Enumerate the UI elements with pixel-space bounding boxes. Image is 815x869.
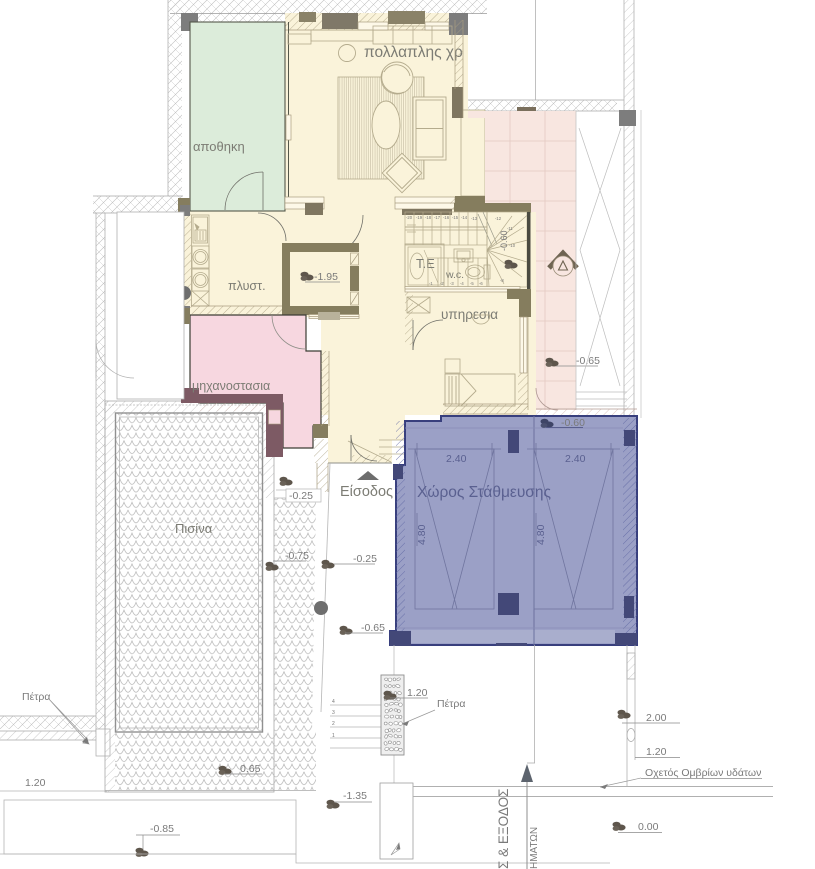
svg-text:1.20: 1.20	[646, 746, 667, 758]
svg-text:2: 2	[332, 721, 335, 727]
svg-text:2.00: 2.00	[646, 712, 667, 724]
svg-text:-16: -16	[443, 215, 450, 220]
svg-text:1: 1	[332, 733, 335, 739]
svg-text:-0.25: -0.25	[353, 553, 377, 565]
svg-text:-19: -19	[416, 215, 423, 220]
svg-text:-0.65: -0.65	[361, 622, 385, 634]
svg-text:-14: -14	[461, 215, 468, 220]
svg-text:0.65: 0.65	[240, 763, 261, 775]
svg-text:υπηρεσια: υπηρεσια	[441, 307, 498, 322]
svg-text:-1.95: -1.95	[314, 271, 338, 283]
svg-text:-0.25: -0.25	[289, 490, 313, 502]
svg-text:-17: -17	[434, 215, 441, 220]
svg-text:3: 3	[332, 710, 335, 716]
svg-text:-10: -10	[509, 243, 516, 248]
svg-text:1.20: 1.20	[25, 777, 46, 789]
svg-text:4.80: 4.80	[416, 524, 428, 545]
svg-text:1.20: 1.20	[407, 687, 428, 699]
svg-text:-12: -12	[495, 216, 502, 221]
svg-text:Χώρος Στάθμευσης: Χώρος Στάθμευσης	[417, 484, 551, 501]
svg-text:ΗΜΑΤΩΝ: ΗΜΑΤΩΝ	[529, 827, 540, 869]
svg-text:-15: -15	[452, 215, 459, 220]
svg-text:-20: -20	[406, 215, 413, 220]
svg-text:Πέτρα: Πέτρα	[22, 691, 50, 703]
svg-text:μηχανοστασια: μηχανοστασια	[192, 379, 270, 393]
svg-text:πολλαπλης χρ: πολλαπλης χρ	[364, 44, 463, 61]
svg-text:Σ & ΕΞΟΔΟΣ: Σ & ΕΞΟΔΟΣ	[496, 789, 511, 869]
svg-text:-18: -18	[425, 215, 432, 220]
svg-text:-11: -11	[507, 226, 513, 231]
svg-text:πλυστ.: πλυστ.	[228, 279, 266, 293]
svg-text:4.80: 4.80	[535, 524, 547, 545]
svg-text:-1.35: -1.35	[343, 790, 367, 802]
svg-text:Οχετός Ομβρίων υδάτων: Οχετός Ομβρίων υδάτων	[645, 767, 761, 779]
svg-text:-0.65: -0.65	[576, 355, 600, 367]
svg-text:-0.85: -0.85	[150, 823, 174, 835]
svg-text:2.40: 2.40	[565, 453, 586, 465]
svg-text:0.00: 0.00	[638, 821, 659, 833]
svg-text:Είσοδος: Είσοδος	[340, 484, 393, 500]
svg-text:-0.60: -0.60	[499, 230, 509, 251]
svg-text:αποθηκη: αποθηκη	[193, 139, 245, 154]
svg-text:Πέτρα: Πέτρα	[437, 698, 465, 710]
svg-text:-13: -13	[471, 216, 478, 221]
svg-text:-0.75: -0.75	[285, 550, 309, 562]
svg-text:Πισίνα: Πισίνα	[175, 521, 213, 536]
svg-text:2.40: 2.40	[446, 453, 467, 465]
svg-text:4: 4	[332, 699, 335, 705]
